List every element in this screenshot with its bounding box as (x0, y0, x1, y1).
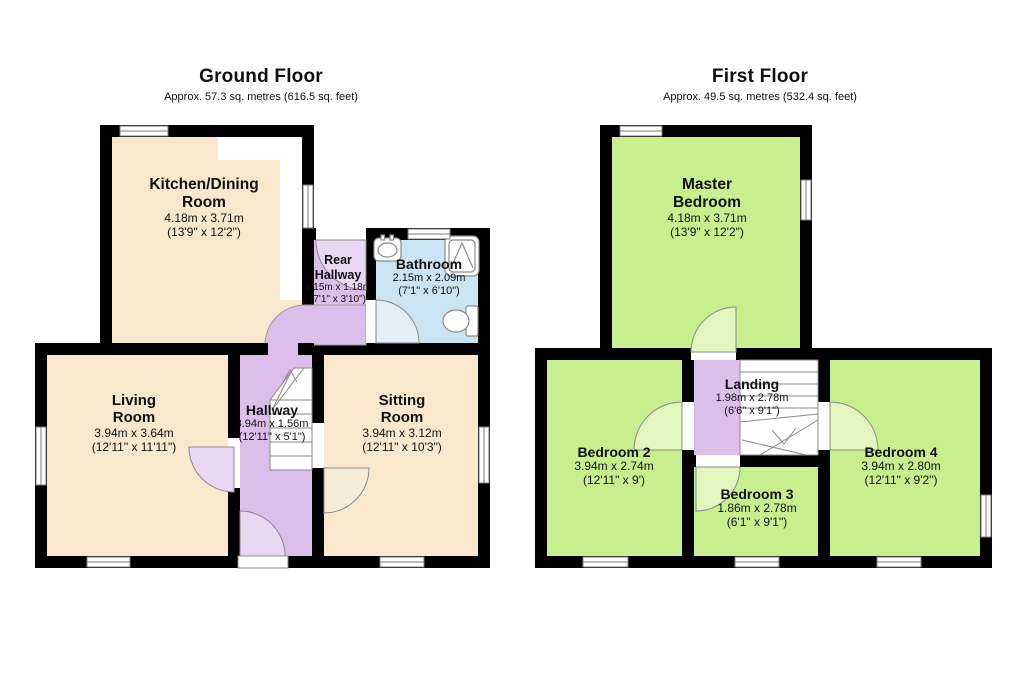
window-marker (583, 557, 628, 567)
room-label-bathroom: Bathroom 2.15m x 2.09m (7'1" x 6'10") (393, 256, 466, 298)
window-marker (877, 557, 921, 567)
room-label-bedroom-4: Bedroom 4 3.94m x 2.80m (12'11" x 9'2") (861, 444, 940, 488)
ground-floor-subtitle: Approx. 57.3 sq. metres (616.5 sq. feet) (164, 91, 358, 103)
room-label-rear-hallway: Rear Hallway 2.15m x 1.18m (7'1" x 3'10"… (305, 253, 371, 305)
bedroom4-door-opening (818, 402, 830, 450)
floorplan-canvas: Ground Floor Approx. 57.3 sq. metres (61… (0, 0, 1024, 682)
bedroom3-door-opening (696, 455, 740, 467)
room-label-landing: Landing 1.98m x 2.78m (6'6" x 9'1") (716, 376, 789, 418)
room-label-hallway: Hallway 3.94m x 1.56m (12'11" x 5'1") (236, 402, 309, 444)
window-marker (801, 180, 811, 220)
window-marker (735, 557, 779, 567)
first-floor-subtitle: Approx. 49.5 sq. metres (532.4 sq. feet) (663, 91, 857, 103)
room-label-kitchen-dining: Kitchen/Dining Room 4.18m x 3.71m (13'9"… (142, 176, 266, 240)
room-label-living-room: Living Room 3.94m x 3.64m (12'11" x 11'1… (92, 392, 176, 455)
ground-floor-title: Ground Floor (199, 66, 323, 88)
room-label-master-bedroom: Master Bedroom 4.18m x 3.71m (13'9" x 12… (660, 176, 755, 240)
first-floor-plan (0, 0, 1024, 682)
window-marker (620, 126, 662, 136)
first-floor-title: First Floor (712, 66, 808, 88)
room-label-bedroom-2: Bedroom 2 3.94m x 2.74m (12'11" x 9') (574, 444, 653, 488)
room-label-sitting-room: Sitting Room 3.94m x 3.12m (12'11" x 10'… (362, 392, 442, 455)
room-label-bedroom-3: Bedroom 3 1.86m x 2.78m (6'1" x 9'1") (717, 486, 796, 530)
bedroom2-door-opening (682, 402, 694, 450)
room-master-bedroom (612, 137, 800, 348)
window-marker (981, 495, 991, 537)
